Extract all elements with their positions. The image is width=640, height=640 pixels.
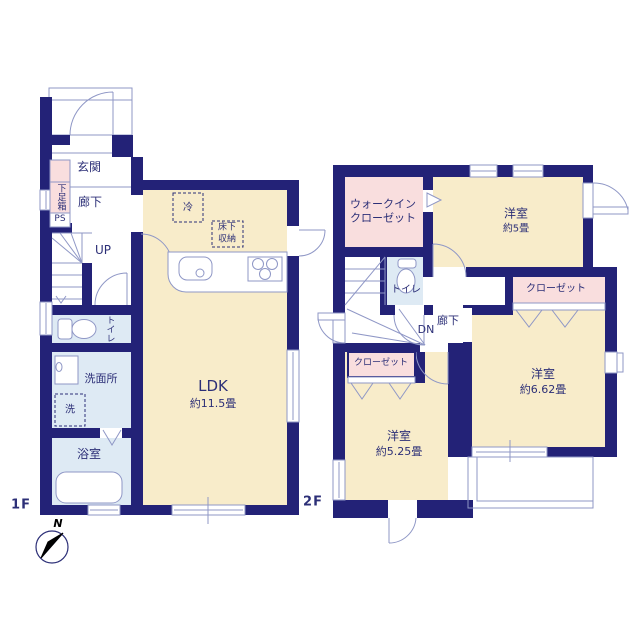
label-walk-in-closet: ウォークイン クローゼット <box>350 198 416 227</box>
label-toilet-2f: トイレ <box>391 284 421 297</box>
opening-bedroom5-door <box>433 267 466 277</box>
label-closet-west: クローゼット <box>354 358 408 370</box>
door-opening-kitchen <box>287 226 299 256</box>
label-genkan: 玄関 <box>77 160 101 176</box>
opening-bedroom662-door <box>463 308 472 342</box>
compass-needle <box>41 533 63 558</box>
label-bathroom: 浴室 <box>77 447 101 463</box>
label-floor-2f: 2F <box>303 495 323 512</box>
label-stairs-dn: DN <box>418 323 435 337</box>
toilet-fixture-1f <box>58 319 96 339</box>
bathtub <box>56 472 122 503</box>
compass-circle <box>36 531 68 563</box>
label-closet-east: クローゼット <box>526 283 586 296</box>
kitchen-counter <box>168 252 287 292</box>
label-ldk-name: LDK <box>190 377 237 397</box>
label-fridge: 冷 <box>183 202 193 215</box>
label-bedroom662: 洋室 約6.62畳 <box>520 367 567 397</box>
stair-hall-door <box>95 273 127 305</box>
floorplan-canvas: 玄関 廊下 下足箱 PS UP トイレ 洗面所 洗 浴室 LDK 約11.5畳 … <box>0 0 640 640</box>
closet-west-opening <box>348 377 415 383</box>
label-stairs-up: UP <box>95 243 111 259</box>
label-hallway-2f: 廊下 <box>437 314 459 328</box>
kitchen-back-door <box>299 230 325 256</box>
balcony <box>468 457 593 508</box>
label-underfloor-storage: 床下 収納 <box>218 222 236 245</box>
label-ldk-area: 約11.5畳 <box>190 397 237 411</box>
label-hallway-1f: 廊下 <box>78 195 102 211</box>
label-washroom: 洗面所 <box>85 372 118 386</box>
label-floor-1f: 1F <box>11 498 31 515</box>
label-bedroom525: 洋室 約5.25畳 <box>376 429 423 459</box>
label-pipe-space: PS <box>54 214 65 226</box>
compass-north-label: N <box>53 517 62 531</box>
balcony-access-door <box>389 518 416 543</box>
entrance-door <box>70 92 113 135</box>
washbasin <box>55 356 78 384</box>
label-toilet-1f: トイレ <box>105 316 114 343</box>
label-shoe-box: 下足箱 <box>56 184 65 211</box>
label-ldk: LDK 約11.5畳 <box>190 377 237 411</box>
label-washer: 洗 <box>65 404 75 417</box>
label-bedroom5: 洋室 約5畳 <box>503 207 529 236</box>
compass <box>36 531 68 563</box>
closet-east-opening <box>513 303 605 310</box>
ldk-floor <box>143 190 287 505</box>
floorplan-drawing <box>0 0 640 640</box>
door-opening-hall-ldk <box>131 195 143 232</box>
opening-balcony-door <box>388 500 417 518</box>
